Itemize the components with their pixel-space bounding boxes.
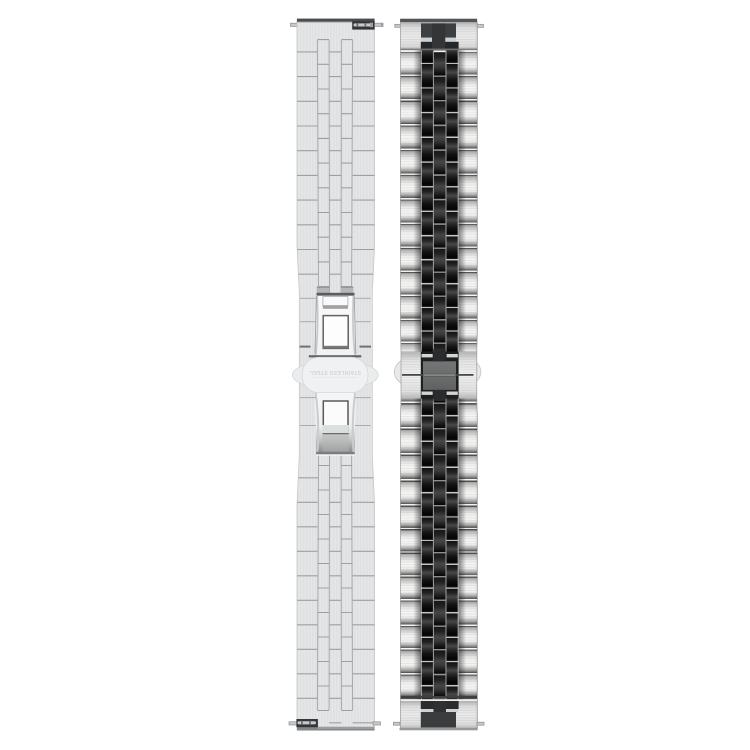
svg-text:STAINLESS STEEL: STAINLESS STEEL — [309, 369, 361, 375]
